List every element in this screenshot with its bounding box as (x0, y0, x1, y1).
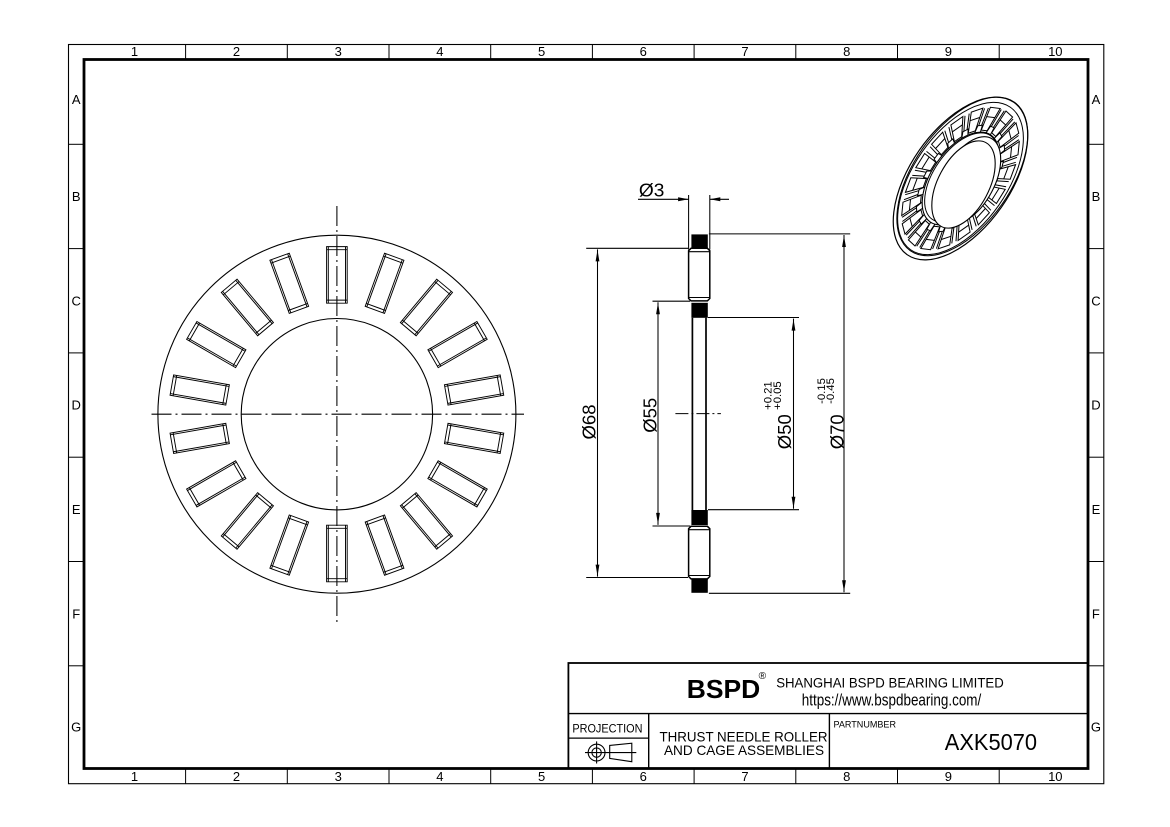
svg-text:D: D (72, 398, 81, 413)
svg-text:10: 10 (1048, 769, 1062, 784)
svg-text:G: G (71, 720, 81, 735)
svg-text:3: 3 (335, 769, 342, 784)
svg-text:C: C (72, 293, 81, 308)
svg-text:4: 4 (436, 769, 443, 784)
svg-text:PROJECTION: PROJECTION (572, 722, 642, 736)
svg-text:THRUST NEEDLE ROLLER: THRUST NEEDLE ROLLER (660, 729, 828, 744)
svg-text:D: D (1091, 398, 1100, 413)
svg-text:F: F (1092, 606, 1100, 621)
svg-text:1: 1 (131, 769, 138, 784)
svg-text:Ø50: Ø50 (774, 414, 795, 449)
svg-text:E: E (1092, 502, 1101, 517)
svg-text:F: F (72, 606, 80, 621)
svg-text:7: 7 (741, 769, 748, 784)
svg-text:G: G (1091, 720, 1101, 735)
svg-text:E: E (72, 502, 81, 517)
svg-text:AXK5070: AXK5070 (945, 729, 1037, 755)
svg-text:Ø68: Ø68 (578, 405, 599, 440)
svg-text:A: A (72, 92, 81, 107)
svg-text:1: 1 (131, 44, 138, 59)
svg-text:+0.05: +0.05 (772, 381, 784, 410)
svg-text:2: 2 (233, 44, 240, 59)
svg-text:https://www.bspdbearing.com/: https://www.bspdbearing.com/ (802, 691, 982, 709)
svg-text:B: B (1092, 189, 1101, 204)
svg-text:-0.45: -0.45 (825, 378, 837, 404)
svg-text:2: 2 (233, 769, 240, 784)
svg-text:9: 9 (945, 769, 952, 784)
svg-text:7: 7 (741, 44, 748, 59)
svg-text:5: 5 (538, 44, 545, 59)
svg-text:B: B (72, 189, 81, 204)
svg-text:8: 8 (843, 44, 850, 59)
svg-text:4: 4 (436, 44, 443, 59)
svg-text:BSPD: BSPD (687, 676, 761, 704)
svg-text:10: 10 (1048, 44, 1062, 59)
svg-text:9: 9 (945, 44, 952, 59)
svg-text:Ø3: Ø3 (639, 179, 665, 200)
svg-text:PARTNUMBER: PARTNUMBER (834, 720, 897, 730)
svg-text:3: 3 (335, 44, 342, 59)
svg-text:6: 6 (640, 769, 647, 784)
svg-text:C: C (1091, 293, 1100, 308)
svg-text:6: 6 (640, 44, 647, 59)
svg-text:Ø55: Ø55 (640, 398, 661, 433)
svg-text:5: 5 (538, 769, 545, 784)
svg-text:Ø70: Ø70 (826, 414, 847, 449)
svg-text:SHANGHAI BSPD BEARING LIMITED: SHANGHAI BSPD BEARING LIMITED (776, 674, 1004, 690)
svg-text:A: A (1092, 92, 1101, 107)
svg-text:AND CAGE ASSEMBLIES: AND CAGE ASSEMBLIES (664, 743, 824, 758)
svg-text:8: 8 (843, 769, 850, 784)
svg-text:®: ® (759, 671, 767, 682)
